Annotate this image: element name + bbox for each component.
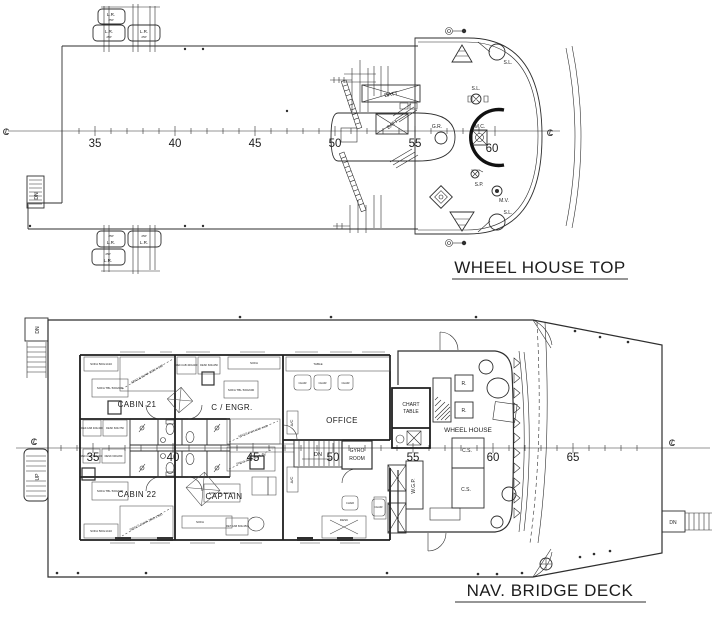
deck-above-projection (530, 322, 539, 543)
svg-text:A/C: A/C (289, 477, 294, 484)
bow-door-swing (533, 320, 552, 348)
frame-number: 55 (407, 452, 420, 464)
desk: DESK (322, 516, 366, 538)
svg-text:SINGLE BUNK 2000 X 800: SINGLE BUNK 2000 X 800 (130, 363, 164, 384)
svg-text:L.R.: L.R. (140, 29, 148, 34)
magnetic-compass-icon (472, 130, 487, 145)
louvre-hatch (390, 149, 418, 168)
svg-text:DESK 600x450: DESK 600x450 (105, 454, 123, 458)
svg-text:SOFA TBL 500x600: SOFA TBL 500x600 (228, 388, 255, 392)
svg-text:L.R.: L.R. (107, 240, 115, 245)
stairs-up-left: UP (24, 449, 48, 501)
bow-door-swing (533, 549, 552, 577)
svg-text:SOFA TBL 500x600: SOFA TBL 500x600 (97, 489, 124, 493)
drawing-sheet: C L C L 35 40 45 50 55 60 L.R. 25P L.R. … (0, 0, 715, 622)
frame-number: 60 (487, 452, 500, 464)
svg-text:SOFA 500x1410: SOFA 500x1410 (90, 362, 112, 366)
svg-text:25P: 25P (141, 35, 146, 39)
svg-text:R.: R. (462, 408, 467, 414)
desk (252, 477, 268, 495)
svg-text:CHAIR: CHAIR (346, 501, 354, 505)
pilot-chair (487, 378, 509, 398)
deck-bow-outline-outer (415, 38, 542, 234)
room-label-chief-engineer: C / ENGR. (211, 403, 252, 412)
svg-text:GYRO: GYRO (350, 448, 365, 454)
capstan-icon (540, 558, 552, 570)
toilet-icon (166, 424, 174, 435)
wgp-locker: W.G.P. (388, 461, 423, 533)
frame-number: 60 (486, 143, 499, 155)
svg-text:SOFA: SOFA (196, 520, 204, 524)
instrument (491, 516, 503, 528)
title-nav-bridge-deck: NAV. BRIDGE DECK (467, 581, 634, 600)
svg-text:C.S.: C.S. (462, 448, 472, 454)
svg-text:CHAIR: CHAIR (298, 381, 306, 385)
stairs-dn-right: DN (662, 511, 712, 532)
bench (430, 508, 460, 520)
svg-text:DN: DN (35, 326, 41, 334)
svg-text:CHAIR: CHAIR (341, 381, 349, 385)
svg-text:R.: R. (462, 381, 467, 387)
hatch-box (341, 128, 357, 142)
chief-engineer-furniture: REF.CAB 400x400 DESK 600x450 SOFA SOFA T… (167, 357, 280, 444)
gyro-room: GYRO ROOM (342, 441, 372, 483)
sink-icon (396, 435, 404, 443)
office-furniture: TABLE CHAIR CHAIR CHAIR A/C (283, 357, 390, 439)
mushroom-vent-label: M.V. (499, 198, 509, 204)
chart-table-room: CHART TABLE (392, 388, 430, 448)
door-swing (188, 405, 202, 419)
frame-number: 40 (167, 452, 180, 464)
svg-text:SOFA 500x1410: SOFA 500x1410 (90, 529, 112, 533)
searchlight-corner-icon (489, 44, 505, 60)
svg-text:CHAIR: CHAIR (318, 381, 326, 385)
sink-icon (161, 438, 166, 443)
svg-text:UP: UP (35, 473, 41, 481)
bridge-door-swings (428, 332, 458, 551)
locker-icon (407, 431, 421, 445)
davit-frames (101, 225, 160, 274)
svg-text:A/C: A/C (289, 420, 294, 427)
svg-text:C.S.: C.S. (461, 487, 471, 493)
svg-text:SOFA TBL 500x600: SOFA TBL 500x600 (209, 491, 236, 495)
dn-label: DN (34, 192, 40, 200)
room-label-cabin22: CABIN 22 (118, 490, 157, 499)
svg-text:RET.CAB 600x450: RET.CAB 600x450 (226, 524, 248, 528)
signal-post-icon (471, 170, 483, 178)
hatch-diamond-icon (430, 186, 453, 209)
captain-furniture: SINGLE BUNK 2000 X 800 SOFA TBL 500x600 … (182, 447, 276, 535)
life-raft-group-top: L.R. 25P L.R. 25P L.R. 25P (93, 4, 160, 52)
wheel-house-top-plan: C L C L 35 40 45 50 55 60 L.R. 25P L.R. … (3, 4, 628, 279)
svg-text:REF.CAB 400x400: REF.CAB 400x400 (81, 426, 103, 430)
svg-text:ROOM: ROOM (349, 456, 365, 462)
svg-text:L.R.: L.R. (105, 29, 113, 34)
frame-number: 35 (87, 452, 100, 464)
svg-text:L.R.: L.R. (140, 240, 148, 245)
mast-triangle-aft (446, 212, 475, 247)
svg-text:BATT: BATT (384, 91, 399, 99)
frame-number: 35 (89, 138, 102, 150)
title-wheel-house-top: WHEEL HOUSE TOP (454, 258, 626, 277)
svg-text:L: L (671, 438, 675, 447)
searchlight-icon (468, 94, 488, 104)
svg-text:25P: 25P (141, 234, 146, 238)
window-band (514, 358, 520, 518)
room-label-wheel-house: WHEEL HOUSE (444, 427, 492, 434)
searchlight-label: S.L. (504, 60, 513, 66)
svg-text:W.G.P.: W.G.P. (411, 478, 417, 493)
frame-number: 45 (249, 138, 262, 150)
chair (82, 468, 95, 480)
svg-text:CHAIR: CHAIR (374, 505, 382, 509)
door-swing (342, 469, 356, 483)
frame-number: 55 (409, 138, 422, 150)
table (286, 357, 390, 371)
bow-curves (566, 46, 581, 228)
ship-ga-drawing: C L C L 35 40 45 50 55 60 L.R. 25P L.R. … (0, 0, 715, 622)
svg-text:SOFA TBL 500x600: SOFA TBL 500x600 (97, 386, 124, 390)
svg-text:25P: 25P (105, 252, 110, 256)
svg-text:DESK: DESK (340, 518, 348, 522)
inclined-ladder (341, 80, 362, 129)
gyro-repeater-label: G.R. (432, 124, 442, 130)
deck-outline (28, 46, 418, 229)
svg-text:CHART: CHART (402, 402, 419, 408)
svg-text:REF.CAB 400x400: REF.CAB 400x400 (81, 454, 103, 458)
svg-text:DN: DN (314, 452, 322, 458)
wheelhouse-interior: R. R. C.S. C.S. (430, 360, 517, 528)
battery-box: BATT (362, 85, 420, 102)
door-swing (283, 425, 297, 439)
stairs-dn-topleft: DN (25, 318, 48, 378)
chair (248, 517, 264, 531)
centerline-symbol: C L (3, 127, 10, 138)
lobby-furniture: A/C CHAIR CHAIR DESK (287, 467, 386, 538)
mast-structure (330, 60, 388, 112)
svg-text:TABLE: TABLE (403, 409, 419, 415)
svg-text:SOFA: SOFA (250, 361, 258, 365)
searchlight-corner-icon (489, 214, 505, 230)
svg-text:L: L (549, 128, 553, 137)
searchlight-label: S.L. (472, 86, 481, 92)
door-swing (146, 477, 160, 491)
room-label-office: OFFICE (326, 416, 358, 425)
svg-text:TABLE: TABLE (313, 362, 322, 366)
mast-triangle-fwd (446, 28, 473, 63)
svg-text:25P: 25P (108, 18, 113, 22)
frame-number: 40 (169, 138, 182, 150)
mushroom-vent-icon (492, 186, 502, 196)
svg-text:L.R.: L.R. (107, 12, 115, 17)
cabinet (268, 477, 276, 495)
svg-text:L.R.: L.R. (104, 258, 112, 263)
signal-post-label: S.P. (475, 182, 484, 188)
searchlight-label: S.L. (504, 210, 513, 216)
toilet-icon (186, 454, 194, 465)
svg-text:25P: 25P (108, 234, 113, 238)
bow-bulkhead-curve (538, 322, 547, 543)
svg-text:25P: 25P (106, 35, 111, 39)
svg-text:L: L (5, 127, 9, 136)
svg-text:DESK 600x450: DESK 600x450 (200, 363, 218, 367)
instrument (479, 360, 493, 374)
frame-number: 50 (329, 138, 342, 150)
nav-bridge-deck-plan: C L C L 35 40 45 50 55 60 65 DN (16, 316, 712, 602)
svg-text:L: L (33, 437, 37, 446)
sofa (182, 516, 232, 528)
svg-text:REF.CAB 400x400: REF.CAB 400x400 (176, 363, 198, 367)
cabin21-furniture: SOFA 500x1410 SINGLE BUNK 2000 X 800 SOF… (81, 357, 175, 436)
frame-number: 50 (327, 452, 340, 464)
toilet-icon (186, 432, 194, 443)
centerline-symbol: C L (669, 438, 676, 449)
bridge-casing-curves (519, 351, 529, 532)
gyro-repeater-icon (435, 132, 447, 144)
centerline-symbol: C L (31, 437, 38, 448)
centerline-symbol: C L (547, 128, 554, 139)
svg-text:SINGLE BUNK 2000 X 800: SINGLE BUNK 2000 X 800 (129, 512, 164, 532)
svg-text:DESK 600x750: DESK 600x750 (106, 426, 124, 430)
frame-number: 65 (567, 452, 580, 464)
svg-text:DN: DN (669, 520, 677, 526)
room-label-cabin21: CABIN 21 (118, 400, 157, 409)
svg-text:SINGLE BUNK 2000 X 800: SINGLE BUNK 2000 X 800 (238, 424, 269, 439)
life-raft-group-bottom: 25P L.R. 25P L.R. 25P L.R. (92, 225, 161, 274)
magnetic-compass-label: M.C. (475, 124, 486, 130)
sink-icon (161, 454, 166, 459)
